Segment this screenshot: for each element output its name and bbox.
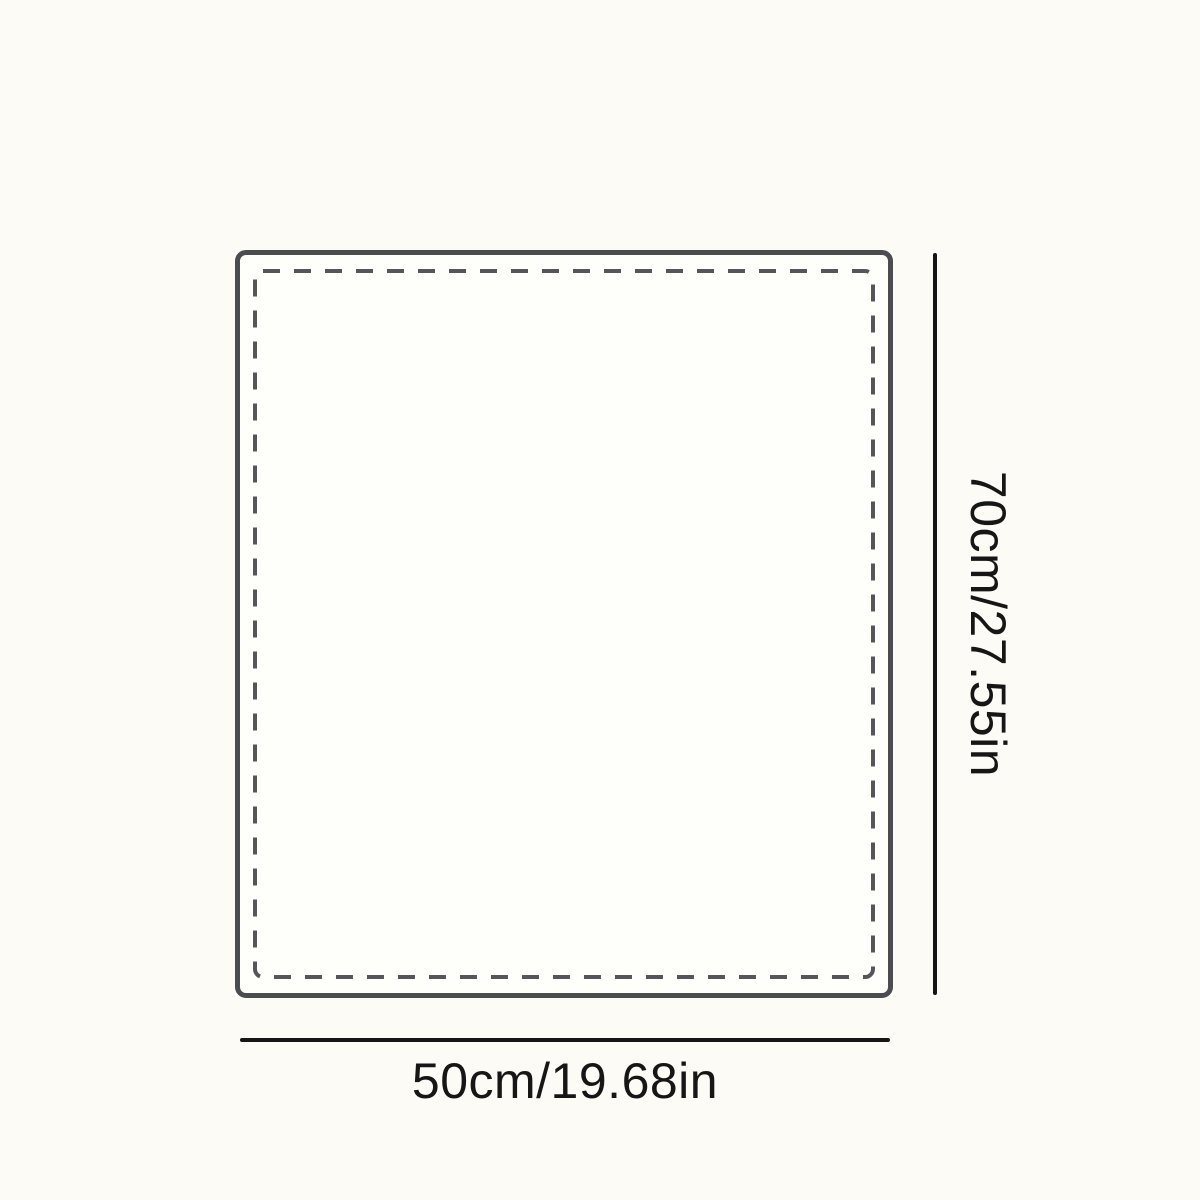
width-dimension-label: 50cm/19.68in [412,1052,718,1110]
size-diagram: 70cm/27.55in 50cm/19.68in [0,0,1200,1200]
fabric-outline [235,250,893,998]
stitch-border [240,255,888,993]
height-dimension-line [933,253,937,995]
stitch-border-rect [255,271,873,977]
width-dimension-line [240,1038,890,1042]
height-dimension-label: 70cm/27.55in [959,471,1017,777]
